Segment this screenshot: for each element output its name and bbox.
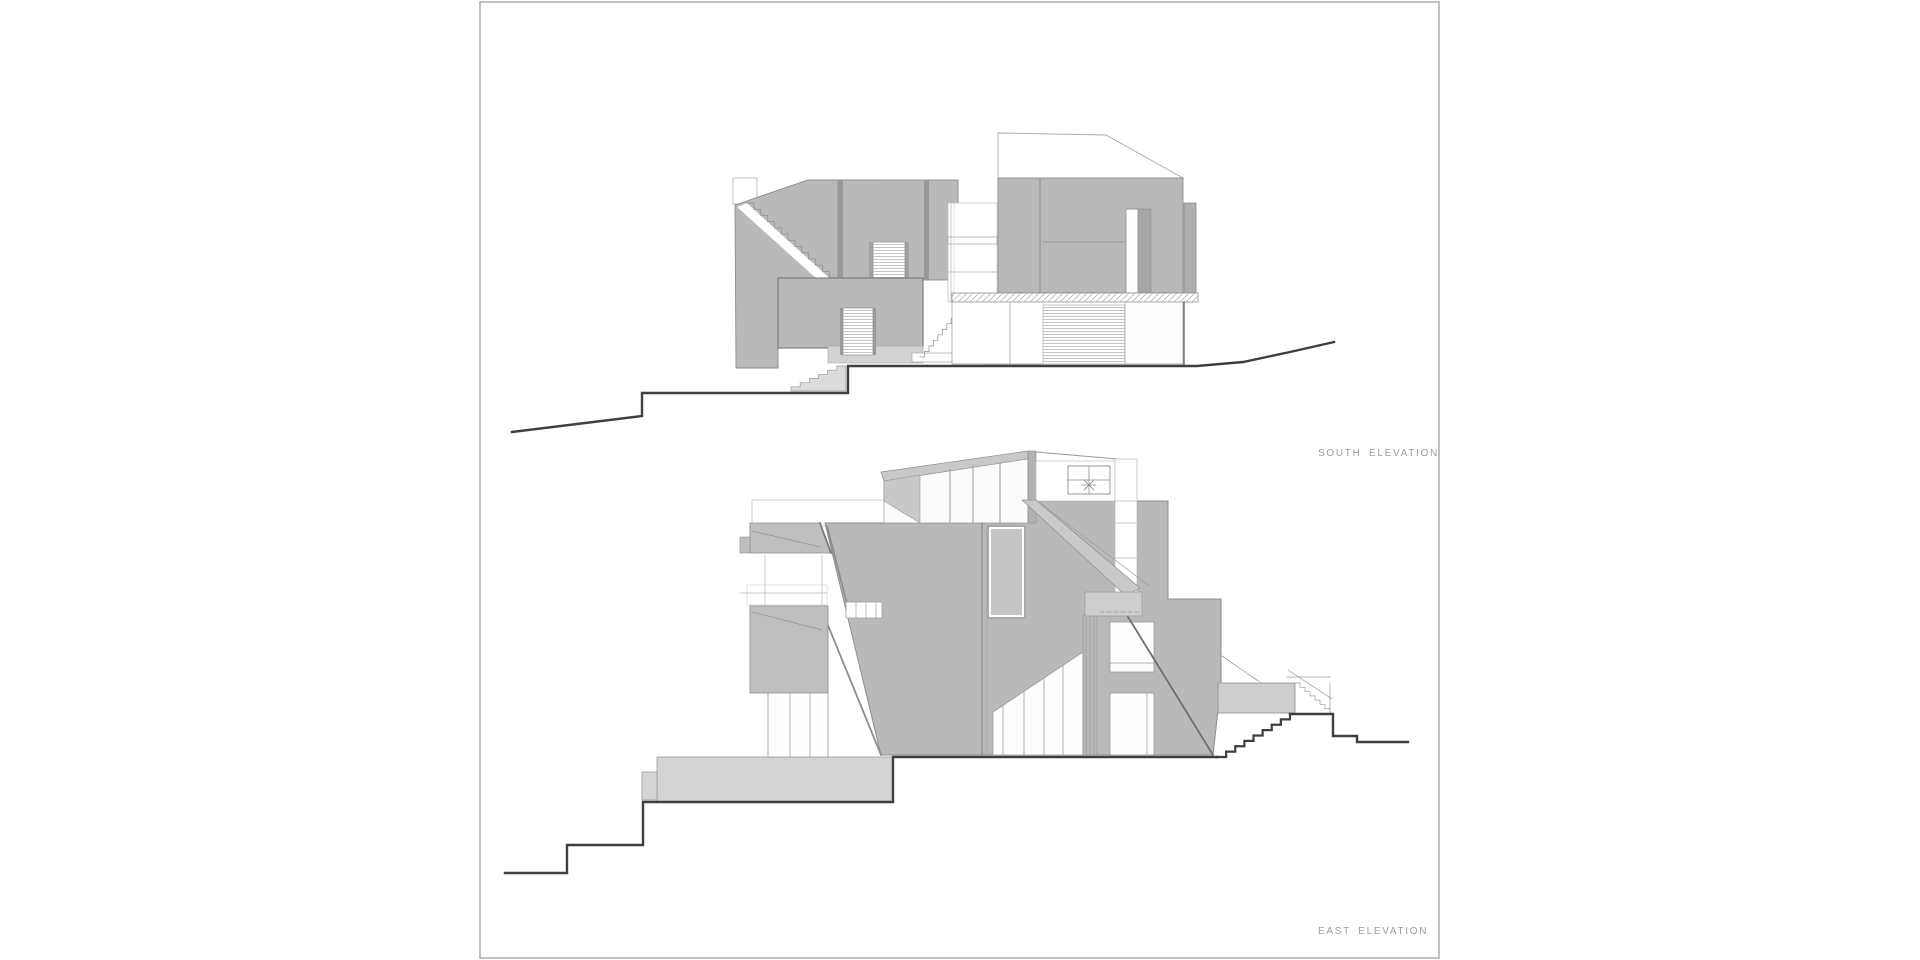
elevations-svg <box>0 0 1920 960</box>
south-elevation-label: SOUTH ELEVATION <box>1318 448 1439 459</box>
east-elevation-label: EAST ELEVATION <box>1318 926 1428 937</box>
architectural-drawing-sheet: SOUTH ELEVATION EAST ELEVATION <box>0 0 1920 960</box>
